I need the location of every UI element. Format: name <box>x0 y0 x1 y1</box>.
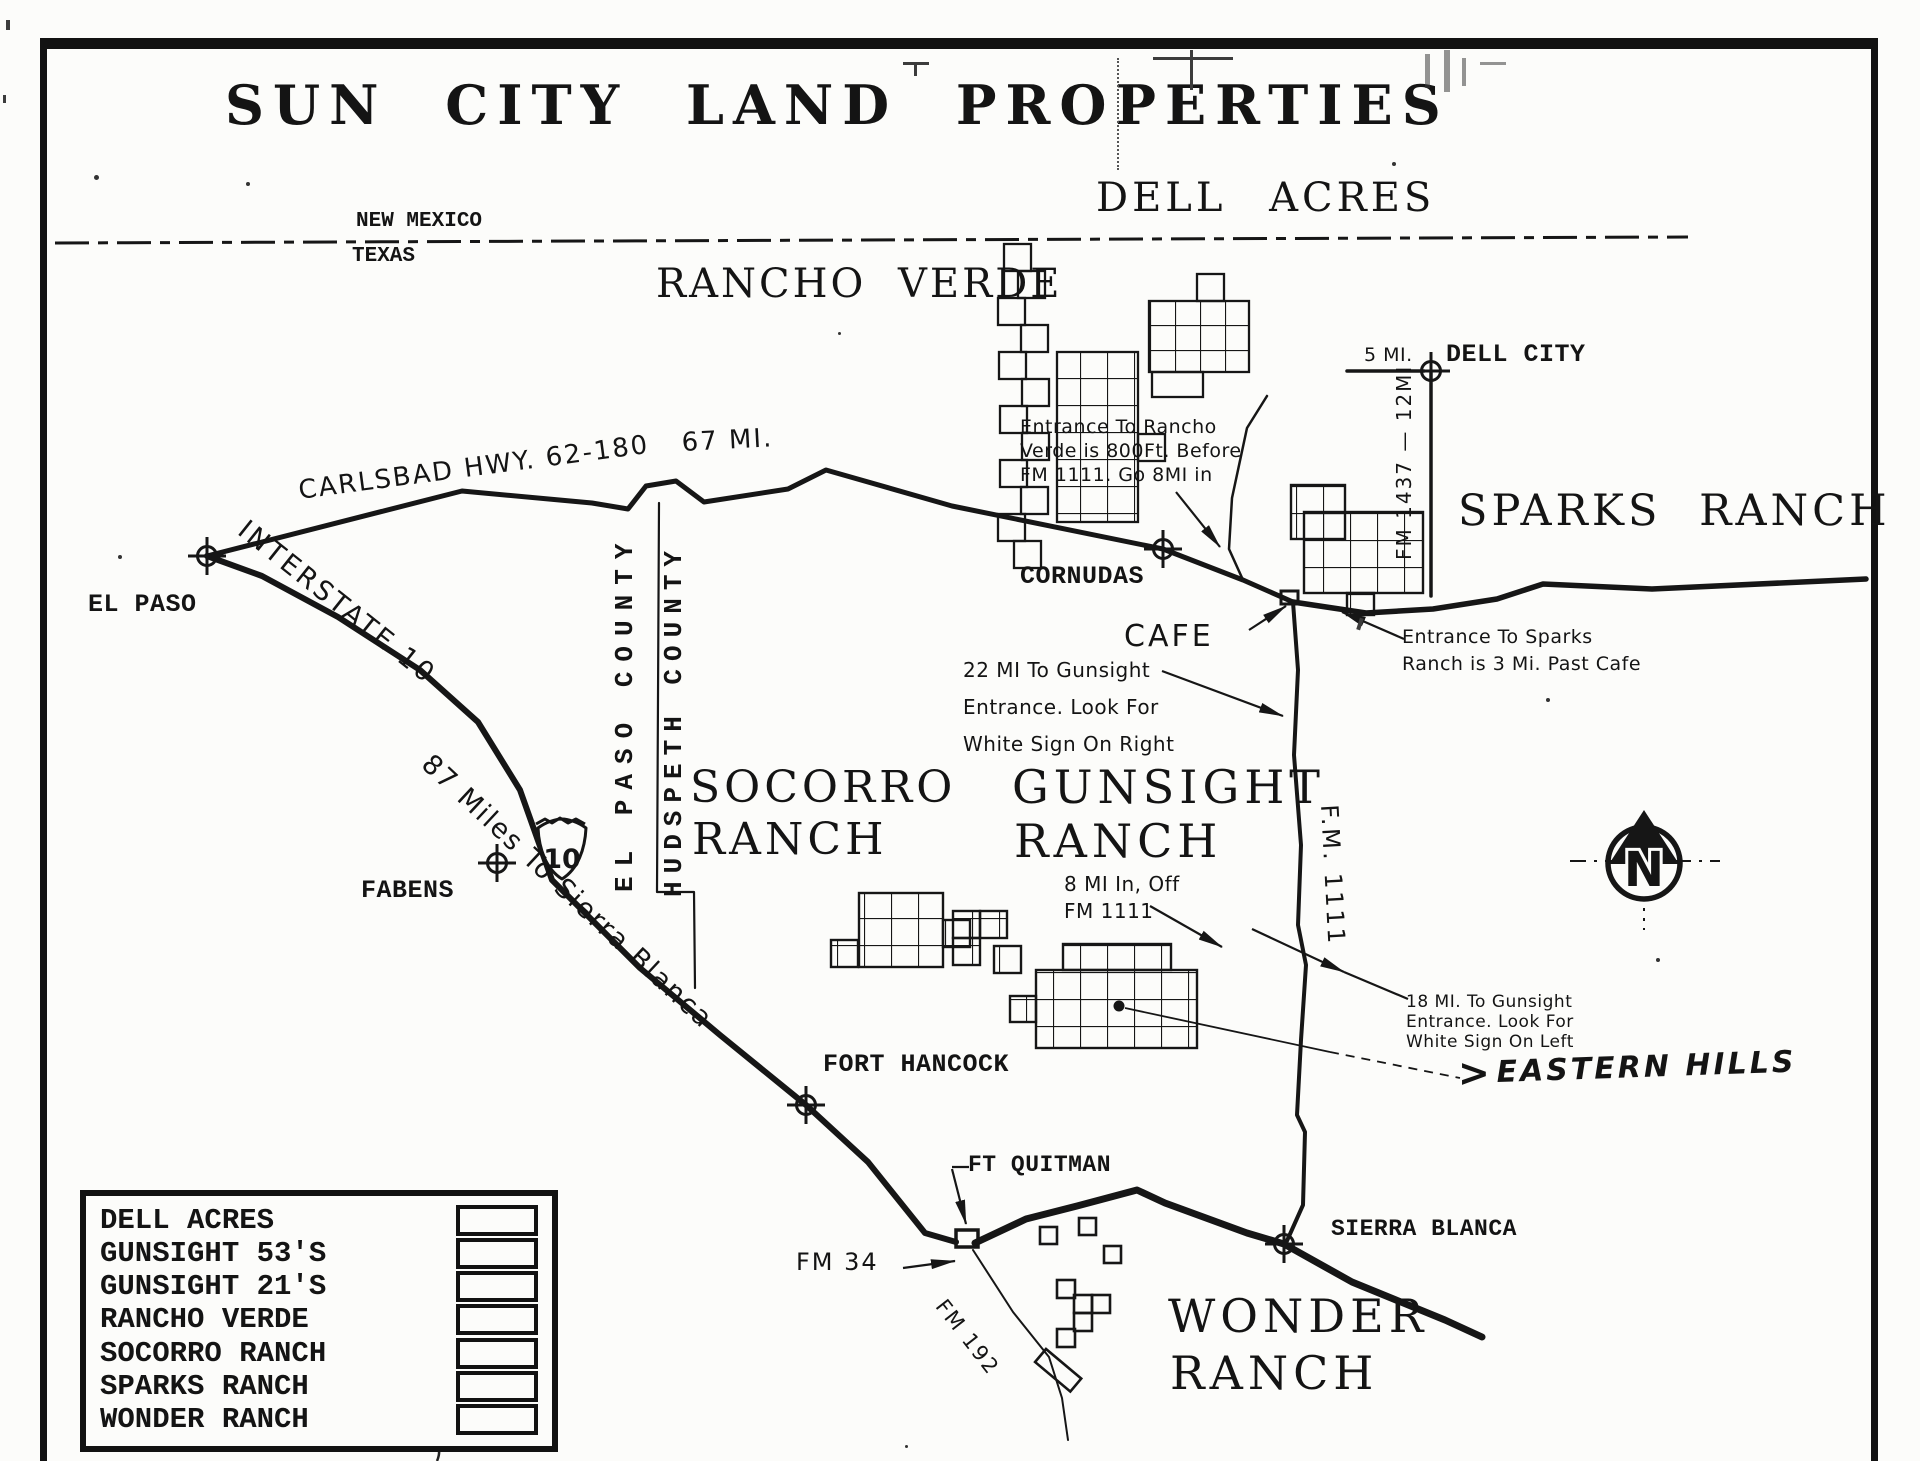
scan-speck <box>1656 958 1660 962</box>
gunsight-entrance-dot <box>1114 1001 1125 1012</box>
scan-artifact <box>1425 54 1430 88</box>
wonder-ranch-grid <box>1035 1218 1121 1392</box>
scan-speck <box>1392 162 1396 166</box>
legend-row: GUNSIGHT 21'S <box>100 1271 540 1303</box>
scan-artifact <box>1190 50 1193 90</box>
socorro-ranch-grid <box>831 893 1021 973</box>
scan-artifact <box>3 95 6 103</box>
legend-swatch-rancho-verde <box>456 1304 538 1335</box>
town-ft-quitman: FT QUITMAN <box>968 1154 1111 1177</box>
scan-speck <box>838 332 841 335</box>
legend-row: SOCORRO RANCH <box>100 1337 540 1369</box>
label-5mi: 5 MI. <box>1364 346 1413 365</box>
arrow-18mi-tail <box>1344 972 1408 999</box>
map-page: 10 <box>0 0 1920 1461</box>
marker-dell-city <box>1412 352 1450 390</box>
note-sparks-line1: Entrance To Sparks <box>1402 628 1593 647</box>
arrow-ftquitman <box>952 1169 966 1224</box>
county-label-el-paso: EL PASO COUNTY <box>612 534 638 892</box>
note-8mi-line2: FM 1111 <box>1064 901 1154 921</box>
town-dell-city: DELL CITY <box>1446 342 1586 367</box>
road-label-fm34: FM 34 <box>796 1250 879 1274</box>
area-socorro-line2: RANCH <box>692 818 887 862</box>
note-rancho-line2: Verde is 800Ft. Before <box>1020 442 1242 461</box>
marker-cornudas <box>1144 530 1182 568</box>
legend-box: DELL ACRES GUNSIGHT 53'S GUNSIGHT 21'S R… <box>80 1190 558 1452</box>
road-fm1111 <box>1286 602 1306 1243</box>
north-compass-icon: N <box>1570 810 1720 930</box>
scan-artifact <box>1117 58 1119 170</box>
arrow-fm34 <box>903 1261 955 1268</box>
town-el-paso: EL PASO <box>88 592 197 617</box>
area-sparks-ranch: SPARKS RANCH <box>1458 490 1891 533</box>
area-gunsight-line2: RANCH <box>1014 818 1222 864</box>
note-8mi-line1: 8 MI In, Off <box>1064 874 1180 894</box>
state-border-line <box>55 237 1688 243</box>
note-rancho-line1: Entrance To Rancho <box>1020 418 1217 437</box>
label-cafe: CAFE <box>1124 622 1214 652</box>
legend-swatch-socorro-ranch <box>456 1338 538 1369</box>
compass-north-letter: N <box>1624 842 1664 898</box>
eastern-hills-chevron: > <box>1458 1054 1493 1092</box>
area-wonder-line2: RANCH <box>1170 1350 1378 1396</box>
road-rancho-verde-access <box>1229 396 1267 580</box>
area-rancho-verde: RANCHO VERDE <box>656 264 1062 304</box>
scan-artifact <box>6 20 10 30</box>
area-gunsight-line1: GUNSIGHT <box>1012 764 1325 810</box>
scan-artifact <box>1153 57 1233 60</box>
road-label-67mi: 67 MI. <box>681 425 774 456</box>
legend-swatch-dell-acres <box>456 1205 538 1236</box>
legend-row: WONDER RANCH <box>100 1404 540 1436</box>
marker-el-paso <box>188 537 226 575</box>
arrow-cafe <box>1249 606 1286 630</box>
note-22mi-line3: White Sign On Right <box>963 734 1174 754</box>
scan-artifact <box>1462 58 1466 86</box>
note-18mi-line1: 18 MI. To Gunsight <box>1406 994 1572 1011</box>
town-fort-hancock: FORT HANCOCK <box>823 1052 1009 1077</box>
note-18mi-line2: Entrance. Look For <box>1406 1014 1574 1031</box>
note-rancho-line3: FM 1111. Go 8MI in <box>1020 466 1213 485</box>
county-label-hudspeth: HUDSPETH COUNTY <box>661 543 687 897</box>
scan-speck <box>905 1445 908 1448</box>
scan-speck <box>118 555 122 559</box>
legend-row: GUNSIGHT 53'S <box>100 1237 540 1269</box>
town-fabens: FABENS <box>361 878 454 903</box>
scan-artifact <box>1444 50 1450 92</box>
area-wonder-line1: WONDER <box>1168 1293 1428 1339</box>
legend-swatch-sparks-ranch <box>456 1371 538 1402</box>
scan-speck <box>246 182 250 186</box>
legend-swatch-gunsight-53s <box>456 1238 538 1269</box>
legend-row: SPARKS RANCH <box>100 1371 540 1403</box>
scan-speck <box>94 175 99 180</box>
note-sparks-line2: Ranch is 3 Mi. Past Cafe <box>1402 655 1641 674</box>
legend-label-socorro-ranch: SOCORRO RANCH <box>100 1337 326 1370</box>
legend-label-rancho-verde: RANCHO VERDE <box>100 1303 309 1336</box>
arrow-8mi <box>1150 906 1222 947</box>
note-18mi-line3: White Sign On Left <box>1406 1034 1574 1051</box>
legend-label-wonder-ranch: WONDER RANCH <box>100 1403 309 1436</box>
town-cornudas: CORNUDAS <box>1020 564 1144 589</box>
legend-label-dell-acres: DELL ACRES <box>100 1204 274 1237</box>
legend-label-sparks-ranch: SPARKS RANCH <box>100 1370 309 1403</box>
legend-swatch-gunsight-21s <box>456 1271 538 1302</box>
arrow-rancho-entrance <box>1176 492 1220 547</box>
note-22mi-line2: Entrance. Look For <box>963 697 1159 717</box>
state-texas: TEXAS <box>352 246 415 267</box>
gunsight-ranch-grid <box>1010 944 1197 1048</box>
scan-artifact <box>1480 62 1506 65</box>
legend-swatch-wonder-ranch <box>456 1404 538 1435</box>
state-new-mexico: NEW MEXICO <box>356 211 482 232</box>
legend-row: DELL ACRES <box>100 1204 540 1236</box>
road-label-fm1437: FM 1437 — 12MI <box>1394 365 1414 560</box>
legend-label-gunsight-21s: GUNSIGHT 21'S <box>100 1270 326 1303</box>
arrow-22mi <box>1162 671 1283 716</box>
marker-sierra-blanca <box>1265 1225 1303 1263</box>
map-title: SUN CITY LAND PROPERTIES <box>225 78 1450 132</box>
scan-artifact <box>914 62 917 76</box>
leader-eastern-hills-dashed <box>1330 1052 1460 1078</box>
area-dell-acres: DELL ACRES <box>1096 178 1435 218</box>
road-label-fm1111: F.M. 1111 <box>1317 804 1348 947</box>
legend-row: RANCHO VERDE <box>100 1304 540 1336</box>
note-22mi-line1: 22 MI To Gunsight <box>963 660 1150 680</box>
legend-label-gunsight-53s: GUNSIGHT 53'S <box>100 1237 326 1270</box>
town-sierra-blanca: SIERRA BLANCA <box>1331 1218 1517 1241</box>
scan-speck <box>1546 698 1550 702</box>
area-socorro-line1: SOCORRO <box>690 766 956 810</box>
